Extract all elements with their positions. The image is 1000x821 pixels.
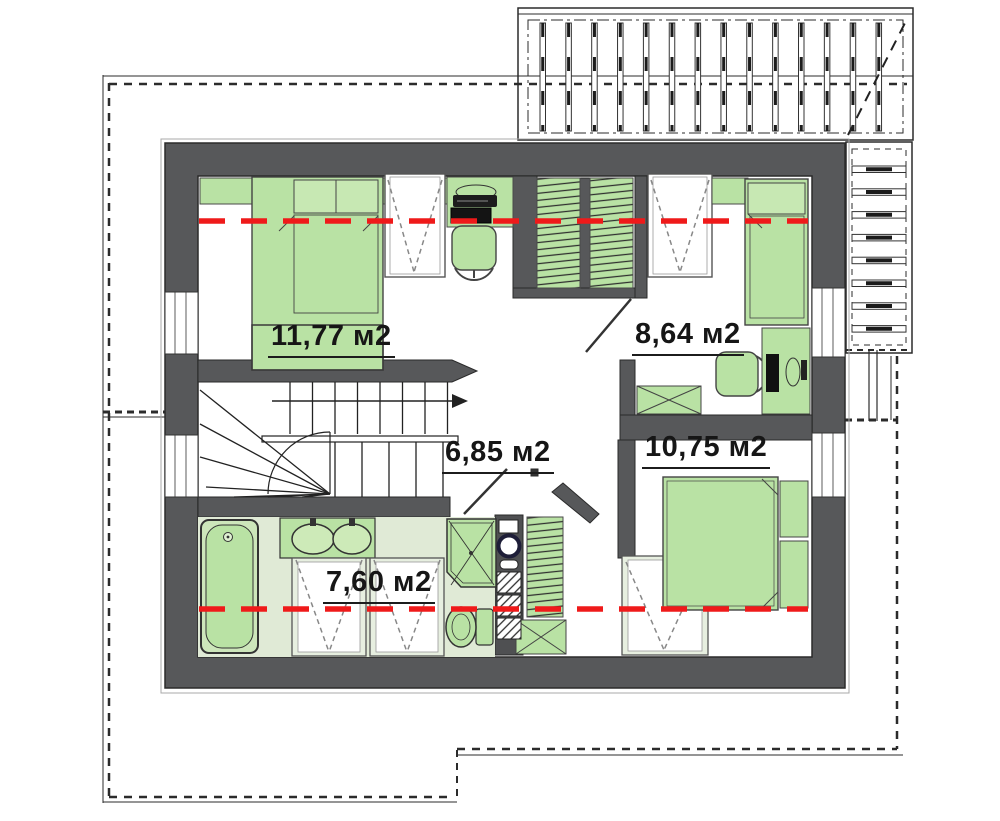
window-right-bedroom3 [812, 433, 845, 497]
wall-stair-bathroom [198, 497, 450, 517]
sink-1 [292, 524, 334, 554]
window-left-bedroom1 [165, 292, 198, 354]
sink-counter [280, 518, 375, 558]
shelf-strip-2 [712, 178, 748, 204]
area-label-bathroom: 7,60 м2 [323, 568, 435, 604]
office-chair-bedroom1 [452, 226, 496, 280]
area-label-hallway: 6,85 м2 [442, 438, 554, 474]
wardrobe-bedroom2 [648, 174, 712, 277]
floor-plan-drawing: 11,77 м2 8,64 м2 6,85 м2 10,75 м2 7,60 м… [0, 0, 1000, 821]
computer-desk-bedroom2 [762, 328, 810, 414]
area-label-bedroom-top-right: 8,64 м2 [632, 320, 744, 356]
wall-closet-divider [580, 178, 590, 288]
window-right-bedroom2 [812, 288, 845, 357]
wall-closet-bottom [513, 288, 647, 298]
area-label-bedroom-top-left: 11,77 м2 [268, 322, 395, 358]
vent-shaft-symbols [497, 520, 521, 639]
cabinet-x-bedroom2 [637, 386, 701, 414]
single-bed [745, 179, 808, 325]
printer-icon [453, 185, 497, 207]
stair-handrail [262, 436, 458, 442]
cabinet-x-nook [516, 620, 566, 654]
wall-bedroom1-closet [513, 176, 537, 298]
vent-pipe-icon [499, 536, 520, 557]
monitor-icon-2 [766, 354, 779, 392]
bathtub [201, 520, 258, 653]
plan-linework [0, 0, 1000, 821]
wardrobe-bedroom1 [385, 174, 445, 277]
wall-closet-bedroom2 [635, 176, 647, 298]
double-bed-bedroom3 [663, 477, 808, 610]
shower [447, 519, 496, 587]
nook-storage [497, 517, 566, 654]
area-label-bedroom-bottom-right: 10,75 м2 [642, 433, 770, 469]
ladder-base [846, 142, 912, 353]
wall-bedroom3-left [618, 440, 635, 558]
toilet [446, 607, 493, 647]
window-left-stair [165, 435, 198, 497]
sink-2 [333, 524, 371, 554]
